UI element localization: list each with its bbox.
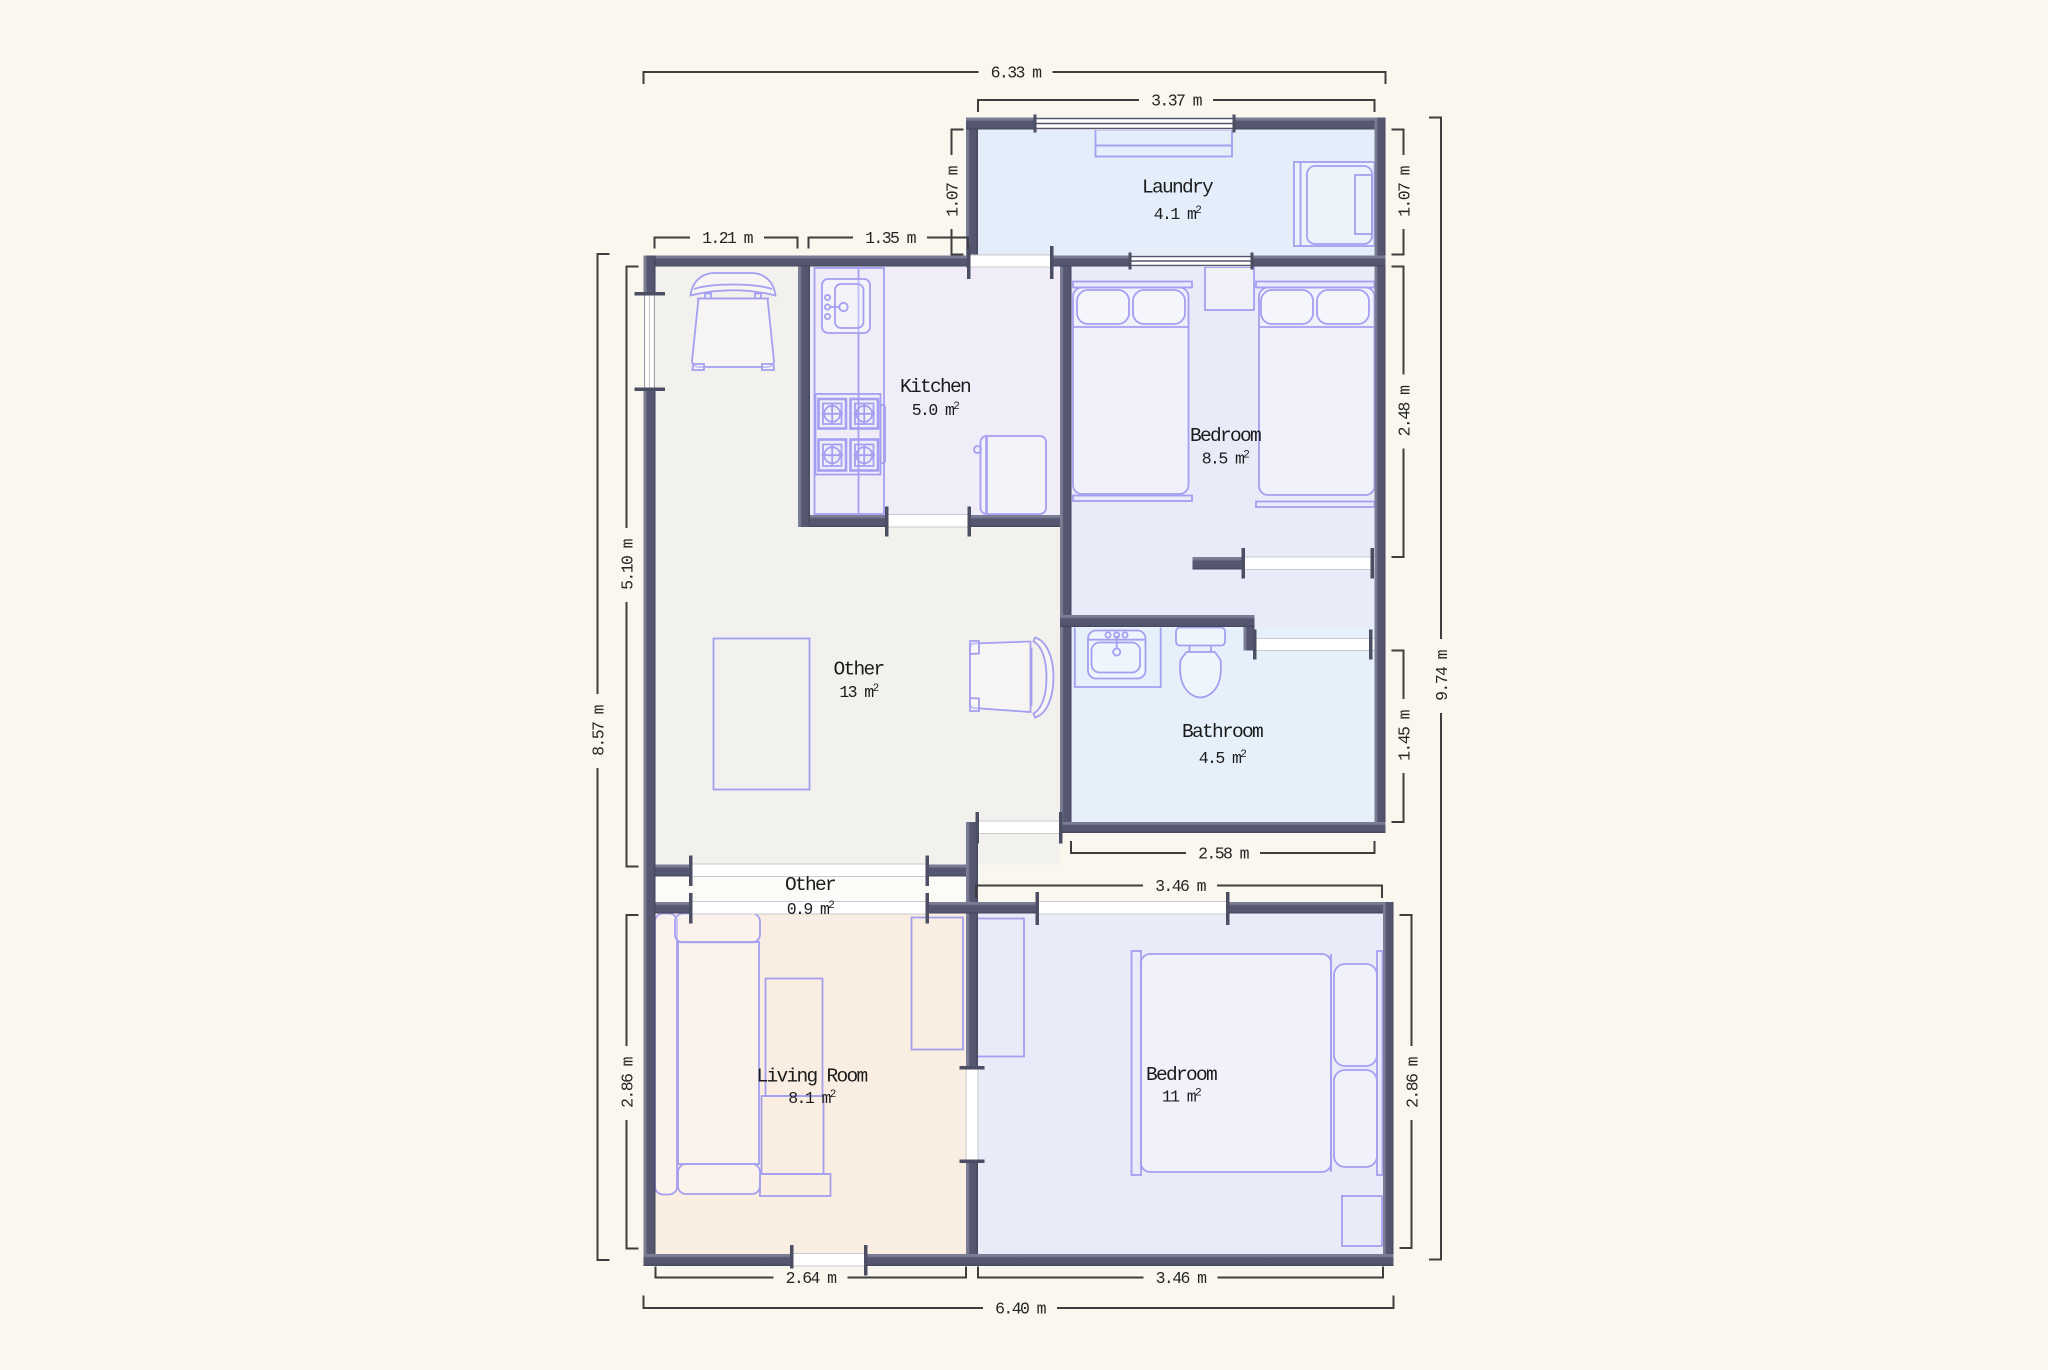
svg-text:Living Room: Living Room [756, 1066, 867, 1088]
svg-text:Bedroom: Bedroom [1190, 425, 1261, 447]
svg-text:6.33 m: 6.33 m [991, 64, 1043, 83]
svg-text:0.9 m2: 0.9 m2 [787, 900, 835, 919]
svg-text:2.86 m: 2.86 m [1404, 1056, 1423, 1108]
svg-text:Other: Other [785, 874, 835, 896]
svg-text:5.10 m: 5.10 m [619, 538, 638, 590]
svg-text:8.57 m: 8.57 m [590, 704, 609, 756]
svg-text:1.45 m: 1.45 m [1396, 709, 1415, 761]
svg-text:3.46 m: 3.46 m [1156, 1269, 1208, 1288]
svg-text:1.21 m: 1.21 m [702, 229, 754, 248]
svg-text:Kitchen: Kitchen [900, 376, 970, 398]
svg-text:2.86 m: 2.86 m [619, 1056, 638, 1108]
svg-text:2.48 m: 2.48 m [1396, 385, 1415, 437]
svg-text:8.1 m2: 8.1 m2 [788, 1089, 836, 1108]
svg-text:Other: Other [833, 659, 883, 681]
svg-text:4.1 m2: 4.1 m2 [1154, 205, 1202, 224]
svg-text:8.5 m2: 8.5 m2 [1202, 450, 1250, 469]
svg-text:1.07 m: 1.07 m [944, 165, 963, 217]
svg-text:Bedroom: Bedroom [1146, 1064, 1217, 1086]
svg-text:Laundry: Laundry [1142, 177, 1214, 199]
svg-text:2.64 m: 2.64 m [786, 1269, 838, 1288]
svg-text:1.35 m: 1.35 m [865, 229, 917, 248]
svg-text:3.37 m: 3.37 m [1151, 92, 1203, 111]
svg-text:5.0 m2: 5.0 m2 [912, 401, 960, 420]
svg-text:Bathroom: Bathroom [1182, 721, 1263, 743]
svg-text:2.58 m: 2.58 m [1198, 845, 1250, 864]
svg-text:3.46 m: 3.46 m [1155, 877, 1207, 896]
svg-text:9.74 m: 9.74 m [1433, 649, 1452, 701]
svg-text:6.40 m: 6.40 m [995, 1300, 1047, 1319]
svg-text:1.07 m: 1.07 m [1396, 165, 1415, 217]
svg-text:4.5 m2: 4.5 m2 [1199, 749, 1247, 768]
